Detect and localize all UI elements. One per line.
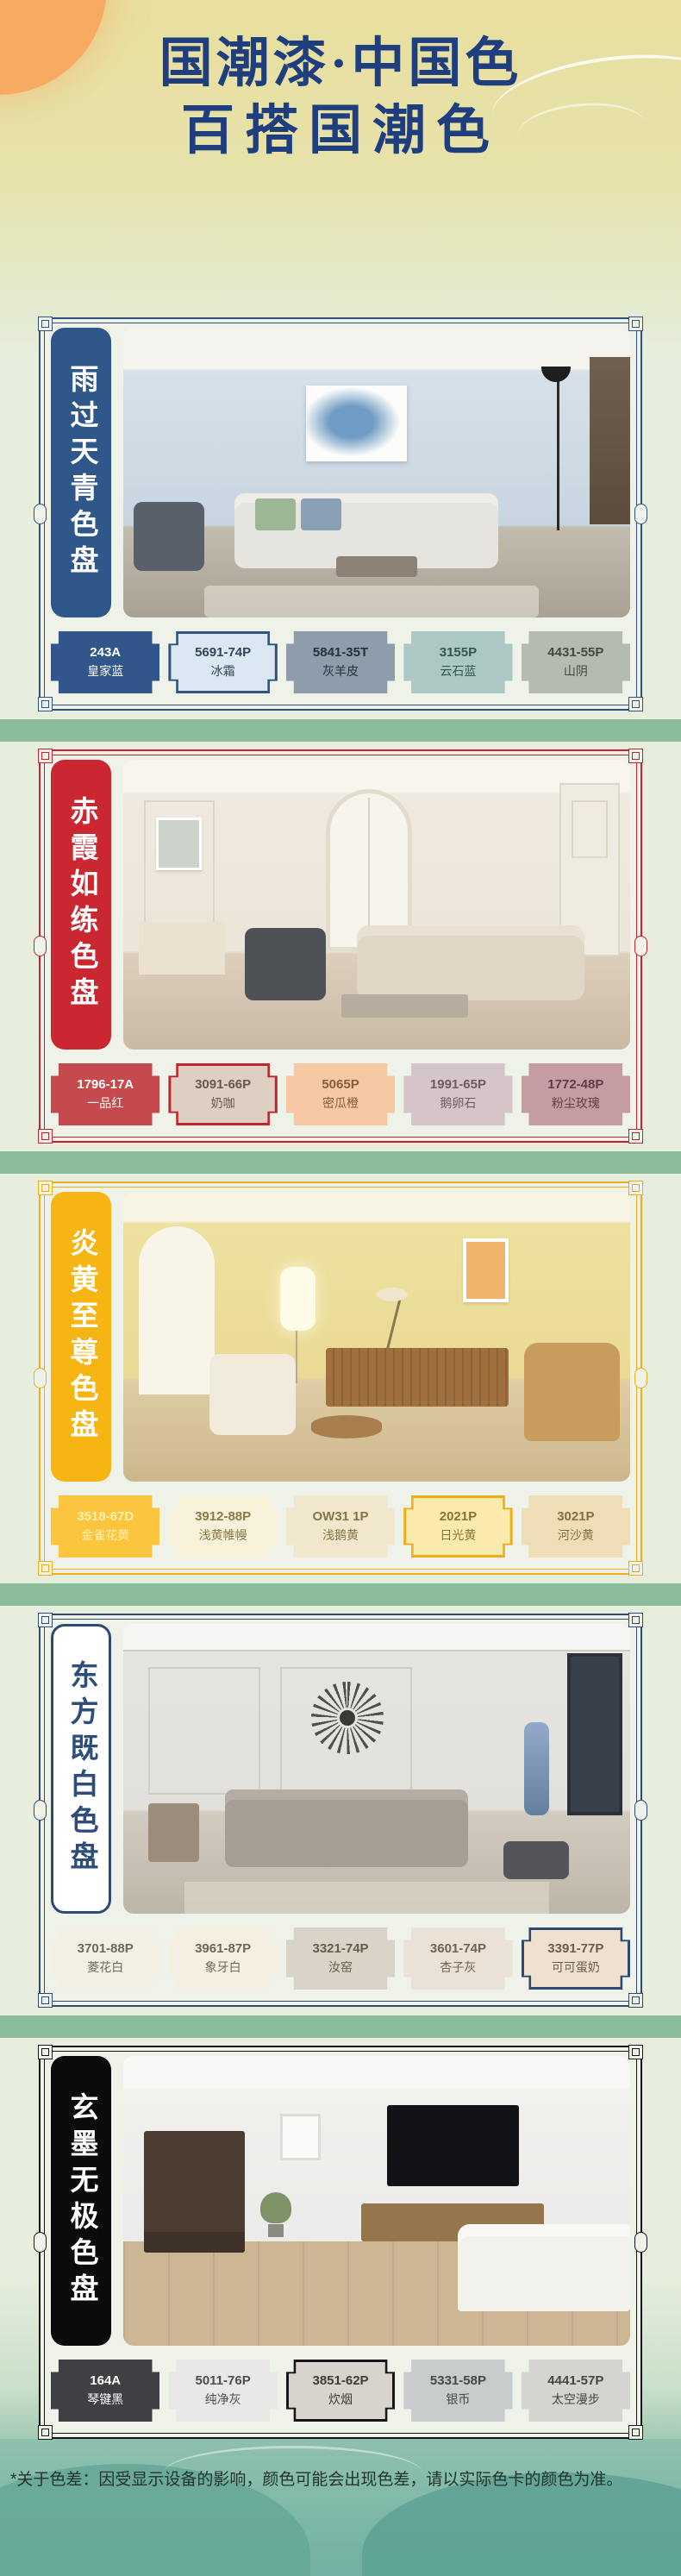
swatch-name: 浅黄帷幔	[199, 1526, 247, 1544]
room-photo-blue-livingroom	[123, 328, 630, 617]
swatch-ring: 3155P云石蓝	[403, 631, 512, 693]
sofa	[225, 1789, 468, 1868]
frame-ornament	[628, 1129, 643, 1144]
swatch-ring: 5331-58P银币	[403, 2360, 512, 2422]
swatch-name: 汝窑	[328, 1959, 353, 1976]
frame-notch	[634, 1800, 647, 1821]
swatch-code: 164A	[90, 2373, 121, 2388]
coffee-table	[336, 556, 417, 577]
floor-vase	[524, 1722, 549, 1815]
swatch-face: 3601-74P杏子灰	[403, 1927, 512, 1990]
palette-card-rain-sky-blue: 雨过天青色盘 243A皇家蓝 5691-74P冰霜 5841-35T灰羊皮 31…	[39, 317, 642, 711]
color-swatch: 3851-62P炊烟	[286, 2360, 395, 2422]
palette-title: 赤霞如练色盘	[60, 796, 102, 1013]
color-swatch: OW31 1P浅鹅黄	[286, 1495, 395, 1558]
swatch-name: 浅鹅黄	[322, 1526, 359, 1544]
frame-notch	[634, 1368, 647, 1388]
color-swatch: 5331-58P银币	[403, 2360, 512, 2422]
frame-ornament	[628, 1561, 643, 1576]
color-swatch: 3701-88P菱花白	[51, 1927, 159, 1990]
title-block: 国潮漆·中国色 百搭国潮色	[0, 34, 681, 160]
color-swatch: 243A皇家蓝	[51, 631, 159, 693]
sideboard	[326, 1348, 509, 1406]
swatch-code: 5841-35T	[313, 645, 368, 660]
footer: *关于色差：因受显示设备的影响，颜色可能会出现色差，请以实际色卡的颜色为准。	[0, 2439, 681, 2576]
color-swatch: 2021P日光黄	[403, 1495, 512, 1558]
swatch-name: 皇家蓝	[87, 662, 123, 680]
swatch-code: 3961-87P	[195, 1941, 251, 1956]
color-swatch: 3961-87P象牙白	[168, 1927, 277, 1990]
swatch-face: 1796-17A一品红	[51, 1063, 159, 1125]
side-table	[148, 1803, 199, 1861]
swatch-code: 243A	[90, 645, 121, 660]
swatch-name: 可可蛋奶	[552, 1959, 600, 1976]
frame-notch	[34, 2232, 47, 2253]
frame-ornament	[628, 1181, 643, 1195]
wall-molding	[148, 1667, 259, 1795]
swatch-name: 冰霜	[211, 662, 235, 680]
swatch-ring: 1772-48P粉尘玫瑰	[522, 1063, 630, 1125]
swatch-code: 3155P	[440, 645, 477, 660]
swatch-face: OW31 1P浅鹅黄	[286, 1495, 395, 1558]
swatch-name: 河沙黄	[558, 1526, 594, 1544]
swatch-ring: 3321-74P汝窑	[286, 1927, 395, 1990]
painting	[306, 385, 408, 461]
blossom-decor	[377, 1288, 408, 1301]
swatch-code: 3391-77P	[547, 1941, 603, 1956]
frame-ornament	[38, 1561, 53, 1576]
tv-screen	[387, 2105, 519, 2186]
swatch-face: 1772-48P粉尘玫瑰	[522, 1063, 630, 1125]
coffee-table	[311, 1415, 382, 1438]
palette-title: 东方既白色盘	[60, 1660, 102, 1877]
swatch-face: 164A琴键黑	[51, 2360, 159, 2422]
lamp-stand	[296, 1331, 297, 1382]
swatch-name: 灰羊皮	[322, 662, 359, 680]
palette-title: 炎黄至尊色盘	[60, 1228, 102, 1445]
swatch-ring: 2021P日光黄	[403, 1495, 512, 1558]
color-swatch: 3091-66P奶咖	[168, 1063, 277, 1125]
frame-ornament	[38, 1993, 53, 2008]
color-swatch: 3912-88P浅黄帷幔	[168, 1495, 277, 1558]
swatch-face: 3155P云石蓝	[403, 631, 512, 693]
cabinet	[144, 2131, 246, 2253]
swatch-name: 鹅卵石	[440, 1094, 476, 1112]
pillow	[301, 498, 341, 530]
swatch-name: 琴键黑	[87, 2391, 123, 2408]
swatch-face: 243A皇家蓝	[51, 631, 159, 693]
swatch-name: 炊烟	[328, 2391, 353, 2408]
swatch-name: 粉尘玫瑰	[552, 1094, 600, 1112]
color-swatch: 5841-35T灰羊皮	[286, 631, 395, 693]
frame-ornament	[628, 749, 643, 763]
color-swatch: 3321-74P汝窑	[286, 1927, 395, 1990]
swatch-name: 太空漫步	[552, 2391, 600, 2408]
swatch-ring: 3961-87P象牙白	[168, 1927, 277, 1990]
cornice	[123, 1650, 630, 1652]
swatch-code: 3701-88P	[78, 1941, 134, 1956]
swatch-face: 3021P河沙黄	[522, 1495, 630, 1558]
room-photo-grey-classic	[123, 1624, 630, 1914]
swatch-name: 山阴	[564, 662, 588, 680]
palette-card-imperial-yellow: 炎黄至尊色盘 3518-67D金雀花黄 3912-88P浅黄帷幔 OW31 1P…	[39, 1181, 642, 1575]
swatch-ring: 164A琴键黑	[51, 2360, 159, 2422]
swatch-face: 1991-65P鹅卵石	[403, 1063, 512, 1125]
swatch-name: 日光黄	[440, 1526, 476, 1544]
swatch-ring: 3518-67D金雀花黄	[51, 1495, 159, 1558]
branch-decor	[385, 1300, 401, 1351]
frame-ornament	[38, 697, 53, 711]
frame-ornament	[38, 317, 53, 331]
color-swatch: 5691-74P冰霜	[168, 631, 277, 693]
color-swatch: 5011-76P纯净灰	[168, 2360, 277, 2422]
frame-notch	[634, 2232, 647, 2253]
color-swatch: 3601-74P杏子灰	[403, 1927, 512, 1990]
swatch-code: 3091-66P	[195, 1077, 251, 1092]
swatch-code: 3912-88P	[195, 1509, 251, 1524]
frame-notch	[34, 1368, 47, 1388]
armchair	[245, 928, 326, 1000]
swatch-code: OW31 1P	[313, 1509, 369, 1524]
swatch-ring: 3021P河沙黄	[522, 1495, 630, 1558]
swatch-code: 5011-76P	[195, 2373, 250, 2388]
swatch-code: 2021P	[440, 1509, 477, 1524]
plant-pot	[268, 2224, 284, 2237]
swatch-name: 象牙白	[205, 1959, 241, 1976]
page-title: 国潮漆·中国色	[0, 34, 681, 93]
mirror-center	[337, 1708, 358, 1728]
color-swatch: 4441-57P太空漫步	[522, 2360, 630, 2422]
swatch-face: 5011-76P纯净灰	[168, 2360, 277, 2422]
swatch-face: 4441-57P太空漫步	[522, 2360, 630, 2422]
palette-banner: 玄墨无极色盘	[51, 2056, 111, 2346]
swatch-name: 云石蓝	[440, 662, 476, 680]
color-swatch: 1796-17A一品红	[51, 1063, 159, 1125]
palette-title: 玄墨无极色盘	[60, 2092, 102, 2310]
color-swatch: 1991-65P鹅卵石	[403, 1063, 512, 1125]
swatch-name: 纯净灰	[205, 2391, 241, 2408]
color-swatch: 3391-77P可可蛋奶	[522, 1927, 630, 1990]
swatch-code: 3021P	[557, 1509, 594, 1524]
frame-ornament	[628, 1613, 643, 1627]
swatch-ring: 1991-65P鹅卵石	[403, 1063, 512, 1125]
swatch-ring: 3912-88P浅黄帷幔	[168, 1495, 277, 1558]
color-swatch: 4431-55P山阴	[522, 631, 630, 693]
palette-banner: 东方既白色盘	[51, 1624, 111, 1914]
swatch-row: 3518-67D金雀花黄 3912-88P浅黄帷幔 OW31 1P浅鹅黄 202…	[51, 1495, 630, 1558]
swatch-ring: 3701-88P菱花白	[51, 1927, 159, 1990]
frame-ornament	[38, 2045, 53, 2059]
arch-doorway	[139, 1226, 215, 1395]
swatch-ring: 3601-74P杏子灰	[403, 1927, 512, 1990]
swatch-face: 2021P日光黄	[406, 1498, 509, 1555]
swatch-code: 4431-55P	[547, 645, 603, 660]
section-divider	[0, 1151, 681, 1174]
swatch-ring: 1796-17A一品红	[51, 1063, 159, 1125]
header: 国潮漆·中国色 百搭国潮色	[0, 0, 681, 317]
frame-ornament	[628, 2045, 643, 2059]
swatch-face: 3391-77P可可蛋奶	[524, 1930, 628, 1987]
swatch-ring: 5011-76P纯净灰	[168, 2360, 277, 2422]
section-divider	[0, 2015, 681, 2038]
floor-lamp	[557, 374, 559, 530]
color-swatch: 164A琴键黑	[51, 2360, 159, 2422]
palette-banner: 雨过天青色盘	[51, 328, 111, 617]
room-photo-modern-grey	[123, 2056, 630, 2346]
armchair	[134, 502, 204, 572]
sofa	[357, 925, 585, 1000]
palette-card-ink-black: 玄墨无极色盘 164A琴键黑 5011-76P纯净灰 3851-62P炊烟 53…	[39, 2046, 642, 2439]
rug	[204, 586, 539, 617]
swatch-code: 3851-62P	[312, 2373, 368, 2388]
swatch-ring: 4441-57P太空漫步	[522, 2360, 630, 2422]
color-swatch: 3518-67D金雀花黄	[51, 1495, 159, 1558]
swatch-code: 5065P	[322, 1077, 359, 1092]
swatch-face: 3701-88P菱花白	[51, 1927, 159, 1990]
swatch-row: 1796-17A一品红 3091-66P奶咖 5065P密瓜橙 1991-65P…	[51, 1063, 630, 1125]
swatch-row: 3701-88P菱花白 3961-87P象牙白 3321-74P汝窑 3601-…	[51, 1927, 630, 1990]
frame-notch	[34, 936, 47, 956]
sofa	[458, 2224, 630, 2311]
swatch-ring: 5691-74P冰霜	[168, 631, 277, 693]
armchair	[209, 1354, 296, 1435]
window	[567, 1653, 623, 1815]
swatch-ring: 3851-62P炊烟	[286, 2360, 395, 2422]
swatch-face: 5065P密瓜橙	[286, 1063, 395, 1125]
frame-ornament	[628, 2425, 643, 2440]
swatch-face: 3091-66P奶咖	[171, 1066, 274, 1123]
color-swatch: 5065P密瓜橙	[286, 1063, 395, 1125]
plant	[260, 2192, 291, 2223]
swatch-face: 3912-88P浅黄帷幔	[168, 1495, 277, 1558]
palette-card-eastern-white: 东方既白色盘 3701-88P菱花白 3961-87P象牙白 3321-74P汝…	[39, 1614, 642, 2007]
lounge-chair	[524, 1343, 621, 1441]
swatch-ring: 3091-66P奶咖	[168, 1063, 277, 1125]
swatch-name: 银币	[446, 2391, 470, 2408]
swatch-ring: OW31 1P浅鹅黄	[286, 1495, 395, 1558]
coffee-table	[341, 994, 468, 1018]
section-divider	[0, 1583, 681, 1606]
swatch-name: 密瓜橙	[322, 1094, 359, 1112]
swatch-face: 4431-55P山阴	[522, 631, 630, 693]
section-divider	[0, 719, 681, 742]
swatch-face: 3851-62P炊烟	[289, 2362, 392, 2419]
swatch-ring: 5065P密瓜橙	[286, 1063, 395, 1125]
swatch-face: 3961-87P象牙白	[168, 1927, 277, 1990]
swatch-face: 3321-74P汝窑	[286, 1927, 395, 1990]
frame-ornament	[38, 749, 53, 763]
footer-note: *关于色差：因受显示设备的影响，颜色可能会出现色差，请以实际色卡的颜色为准。	[10, 2466, 622, 2490]
swatch-name: 杏子灰	[440, 1959, 476, 1976]
swatch-code: 3321-74P	[312, 1941, 368, 1956]
color-swatch: 1772-48P粉尘玫瑰	[522, 1063, 630, 1125]
swatch-name: 奶咖	[211, 1094, 235, 1112]
poster: 国潮漆·中国色 百搭国潮色 雨过天青色盘	[0, 0, 681, 2576]
frame-ornament	[628, 697, 643, 711]
frame-notch	[34, 1800, 47, 1821]
swatch-name: 金雀花黄	[81, 1526, 129, 1544]
swatch-code: 4441-57P	[547, 2373, 603, 2388]
frame-ornament	[628, 317, 643, 331]
bookshelf	[590, 357, 630, 525]
palette-banner: 炎黄至尊色盘	[51, 1192, 111, 1482]
frame-ornament	[628, 1993, 643, 2008]
palette-banner: 赤霞如练色盘	[51, 760, 111, 1050]
swatch-code: 5331-58P	[430, 2373, 486, 2388]
rug	[184, 1882, 549, 1914]
swatch-code: 3518-67D	[77, 1509, 134, 1524]
swatch-ring: 4431-55P山阴	[522, 631, 630, 693]
swatch-row: 243A皇家蓝 5691-74P冰霜 5841-35T灰羊皮 3155P云石蓝 …	[51, 631, 630, 693]
frame-notch	[634, 936, 647, 956]
pillow	[255, 498, 296, 530]
swatch-face: 5691-74P冰霜	[171, 634, 274, 691]
swatch-ring: 5841-35T灰羊皮	[286, 631, 395, 693]
swatch-code: 1991-65P	[430, 1077, 486, 1092]
door-panel	[572, 800, 607, 858]
page-subtitle: 百搭国潮色	[0, 102, 681, 160]
swatch-face: 5331-58P银币	[403, 2360, 512, 2422]
swatch-code: 1772-48P	[547, 1077, 603, 1092]
ottoman	[503, 1841, 569, 1879]
swatch-code: 1796-17A	[77, 1077, 134, 1092]
room-photo-yellow-livingroom	[123, 1192, 630, 1482]
palette-card-red-glow: 赤霞如练色盘 1796-17A一品红 3091-66P奶咖 5065P密瓜橙 1…	[39, 749, 642, 1143]
swatch-name: 菱花白	[87, 1959, 123, 1976]
floor-lamp	[280, 1267, 316, 1331]
swatch-face: 3518-67D金雀花黄	[51, 1495, 159, 1558]
frame-ornament	[38, 1613, 53, 1627]
frame-ornament	[38, 1129, 53, 1144]
swatch-ring: 3391-77P可可蛋奶	[522, 1927, 630, 1990]
frame-notch	[634, 504, 647, 524]
swatch-code: 5691-74P	[195, 645, 251, 660]
frame-notch	[34, 504, 47, 524]
swatch-name: 一品红	[87, 1094, 123, 1112]
painting	[463, 1238, 509, 1302]
painting	[280, 2114, 321, 2160]
frame-ornament	[38, 2425, 53, 2440]
painting	[156, 818, 202, 869]
room-photo-classic-white	[123, 760, 630, 1050]
lamp-shade	[541, 367, 571, 382]
swatch-face: 5841-35T灰羊皮	[286, 631, 395, 693]
color-swatch: 3021P河沙黄	[522, 1495, 630, 1558]
color-swatch: 3155P云石蓝	[403, 631, 512, 693]
swatch-ring: 243A皇家蓝	[51, 631, 159, 693]
swatch-code: 3601-74P	[430, 1941, 486, 1956]
console-table	[139, 922, 225, 974]
palette-title: 雨过天青色盘	[60, 364, 102, 581]
swatch-row: 164A琴键黑 5011-76P纯净灰 3851-62P炊烟 5331-58P银…	[51, 2360, 630, 2422]
frame-ornament	[38, 1181, 53, 1195]
